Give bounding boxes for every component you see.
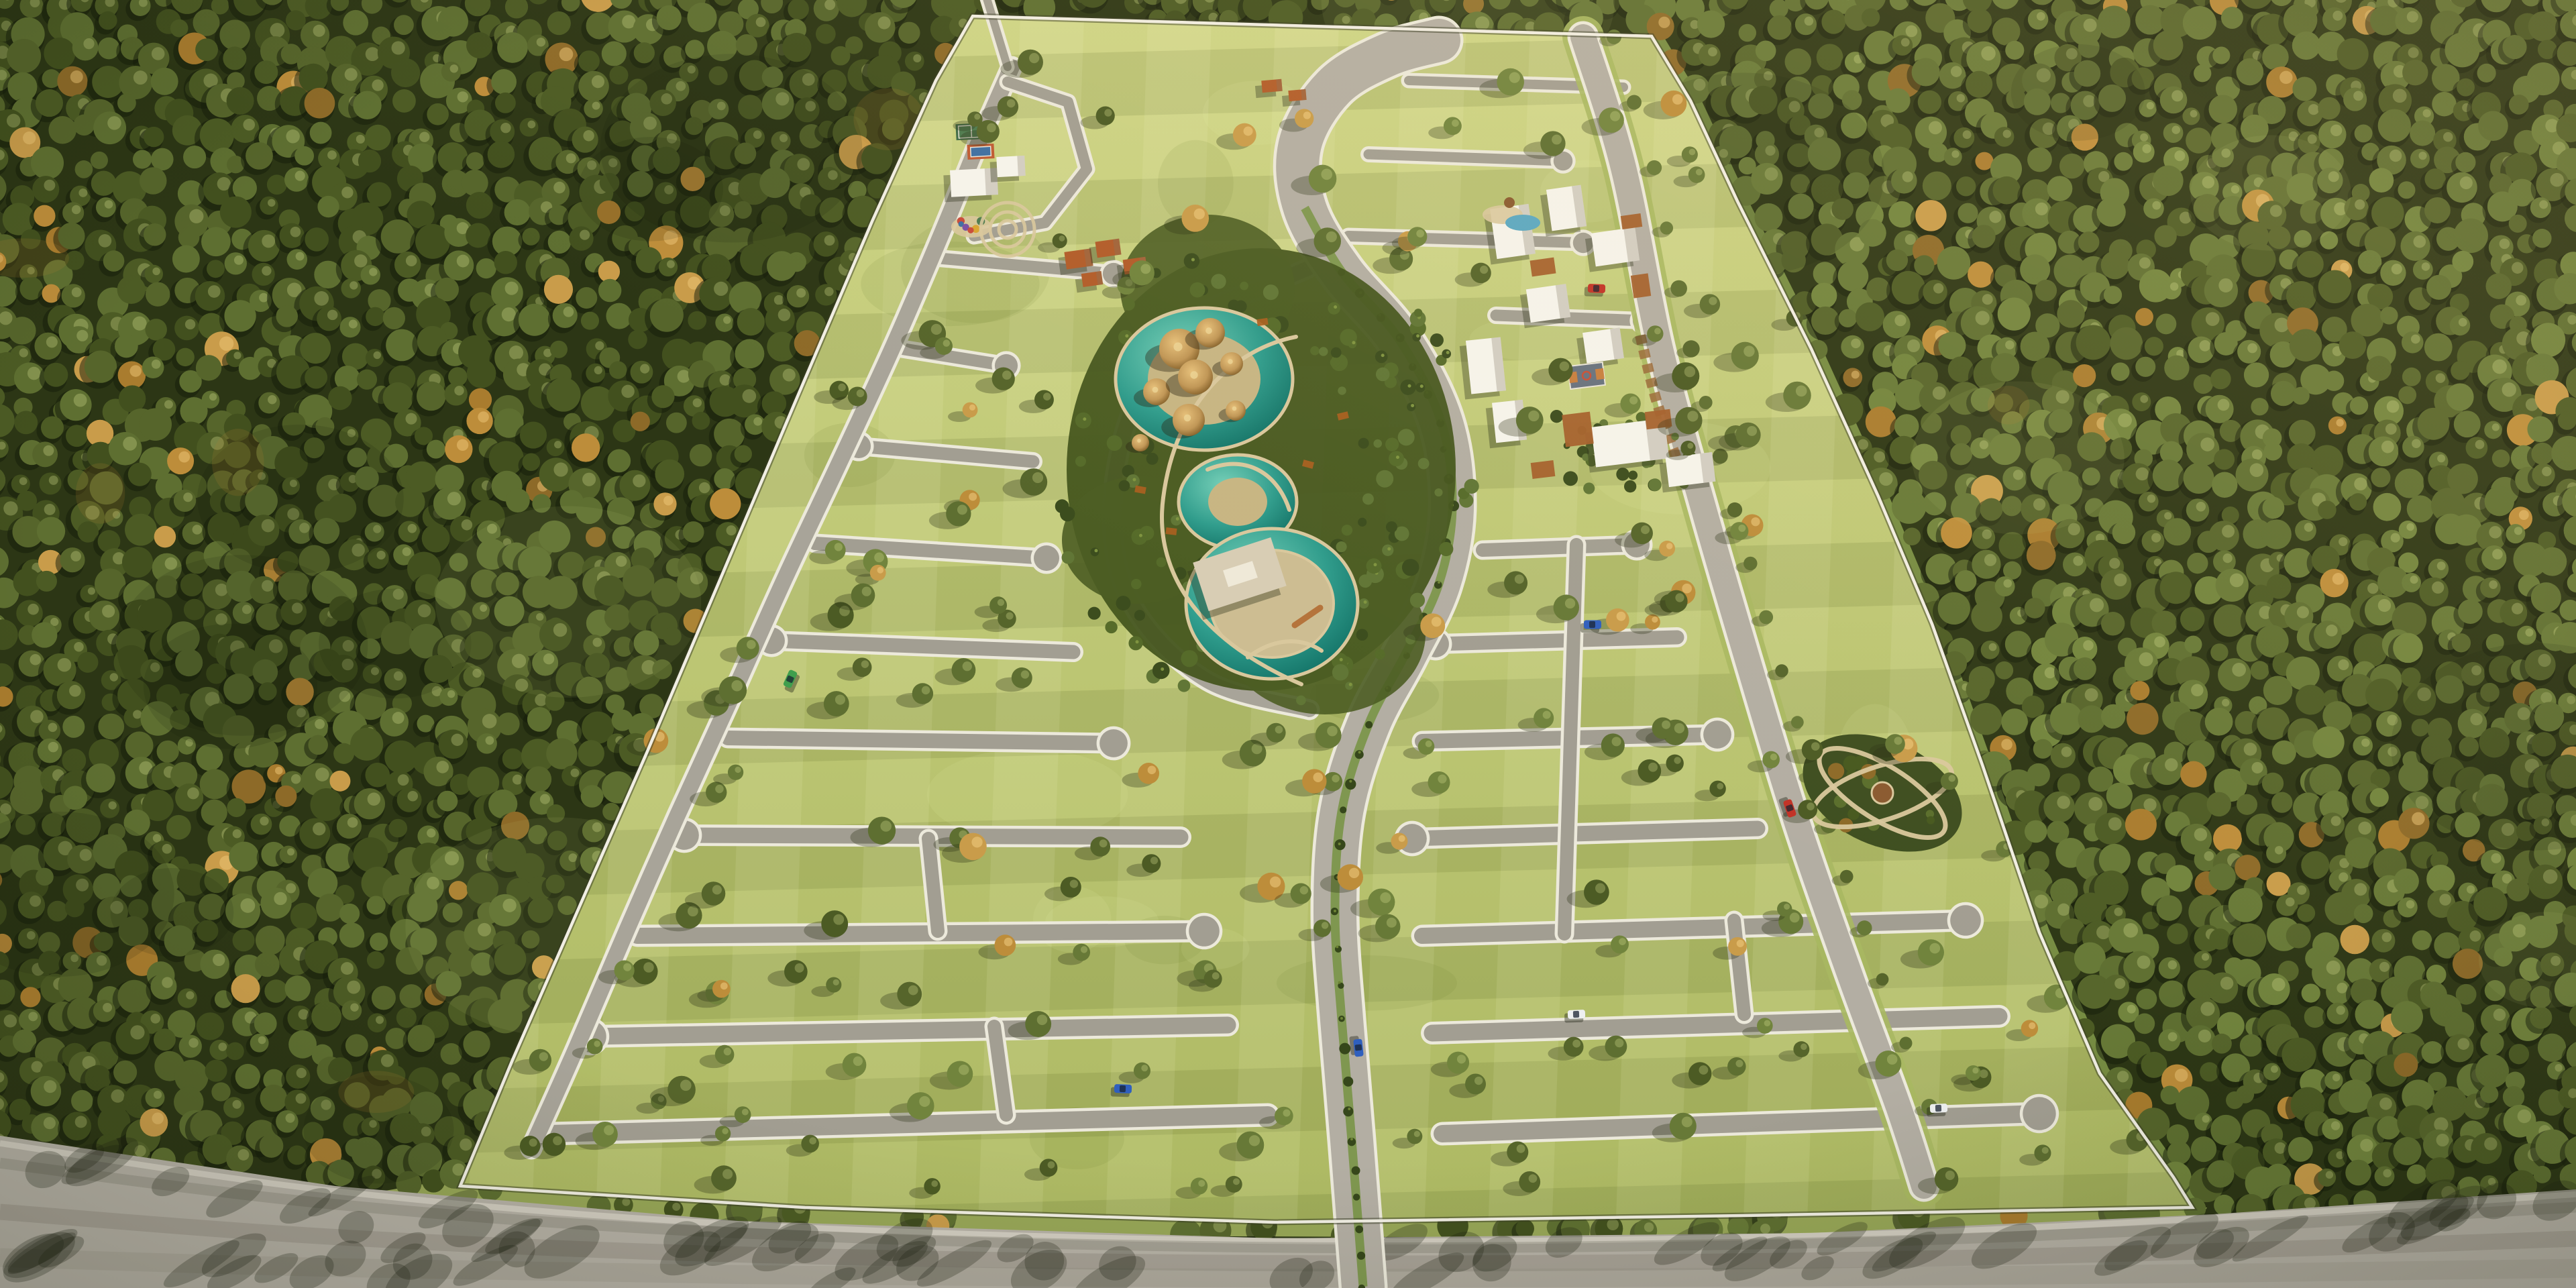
lighting-overlay — [0, 0, 2576, 1288]
viewport: Aerial 3D render of a gated residential … — [0, 0, 2576, 1288]
aerial-render: Aerial 3D render of a gated residential … — [0, 0, 2576, 1288]
